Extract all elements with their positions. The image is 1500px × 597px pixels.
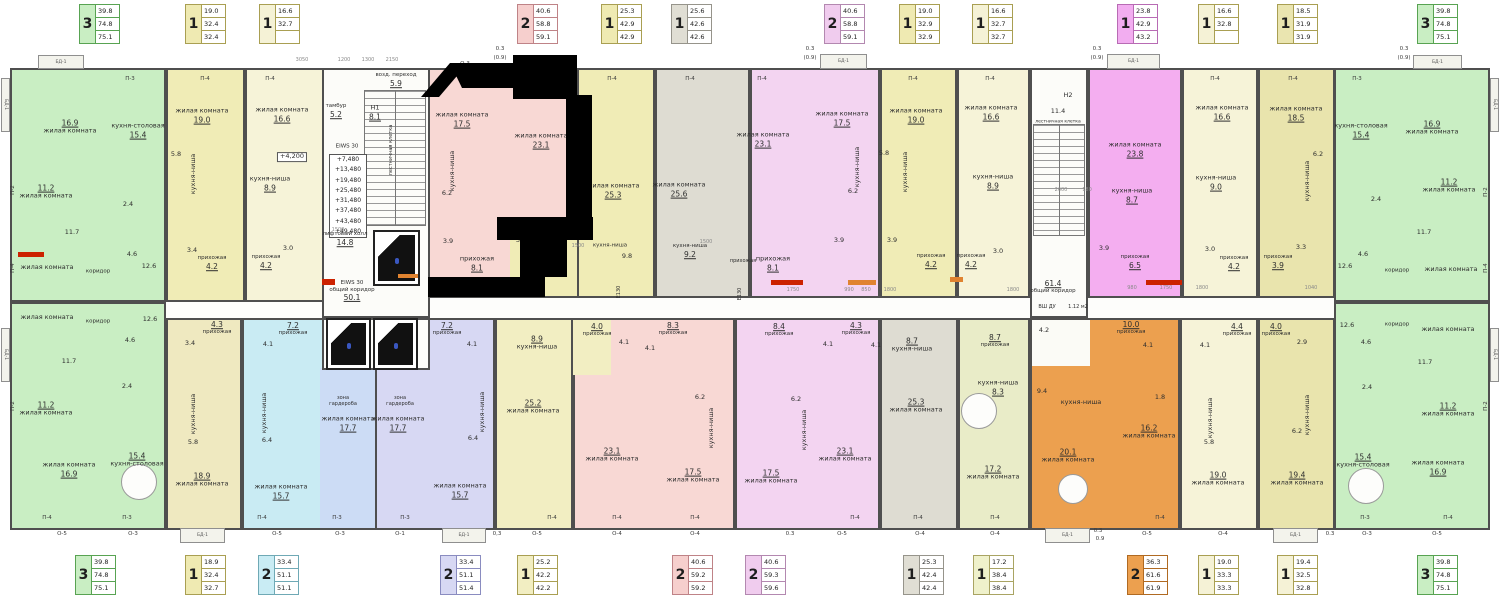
room-name: жилая комната	[818, 456, 871, 464]
wall-label: 0.9	[1096, 536, 1105, 542]
badge-area-value: 58.8	[534, 18, 557, 31]
room-name: жилая комната	[42, 462, 95, 470]
badge-area-value: 36.3	[1144, 556, 1167, 569]
room-name: 6.4	[262, 437, 272, 445]
room-label: 4.1	[1143, 342, 1153, 350]
room-area: 19.0	[175, 115, 228, 124]
room-name: кухня-ниша	[1196, 175, 1237, 183]
room-name: 4.1	[645, 345, 655, 353]
room-label: 5.8	[879, 150, 889, 158]
table-icon	[121, 464, 157, 500]
wall-label: О-3	[335, 531, 345, 537]
room-label: 3.9	[516, 237, 526, 245]
room-label: ВШ ДУ	[1038, 304, 1055, 310]
room-name: 5.8	[171, 151, 181, 159]
floor-level-value: +31,480	[330, 198, 366, 204]
wall-label: 0.3	[1326, 531, 1335, 537]
apartment-badge[interactable]: 116.632.8	[1198, 4, 1239, 44]
room-name: прихожая	[1121, 254, 1150, 261]
room-label: прихожая8.1	[460, 256, 494, 273]
wall-label: П-4	[850, 515, 860, 521]
apartment-badge[interactable]: 125.342.942.9	[601, 4, 642, 44]
room-area: 8.1	[369, 112, 381, 121]
badge-area-value: 25.3	[920, 556, 943, 569]
room-label: 4.6	[127, 251, 137, 259]
wall-label: (0.9)	[803, 55, 816, 61]
badge-room-count: 3	[1418, 556, 1433, 594]
room-label: 19.4жилая комната	[1270, 471, 1323, 488]
room-label: 8.7кухня-ниша	[892, 337, 933, 354]
floor-levels-box: +7,480+13,480+19,480+25,480+31,480+37,48…	[329, 154, 367, 238]
apartment-badge[interactable]: 125.642.642.6	[671, 4, 712, 44]
room-label: 4.3прихожая	[842, 321, 871, 337]
badge-areas: 33.451.151.1	[274, 556, 298, 594]
room-label: 2.4	[123, 201, 133, 209]
room-name: 3.0	[993, 248, 1003, 256]
badge-area-value: 33.3	[1215, 582, 1238, 594]
badge-area-value: 16.6	[1215, 5, 1238, 18]
stair-divider	[1059, 125, 1060, 235]
room-area: 15.4	[111, 130, 164, 139]
badge-area-value: 74.8	[96, 18, 119, 31]
room-label: 17.5жилая комната	[744, 469, 797, 486]
wall-label: О-3	[460, 61, 470, 67]
room-label: жилая комната16.6	[255, 107, 308, 124]
room-label: EIWS 30 общий коридор50.1	[329, 280, 374, 302]
room-name: жилая комната	[20, 314, 73, 322]
room-name: 4.1	[871, 342, 881, 350]
room-area: 19.0	[889, 115, 942, 124]
room-name: жилая комната	[19, 410, 72, 418]
room-area: 25.6	[652, 189, 705, 198]
wall-label: О-5	[1432, 531, 1442, 537]
apartment-badge[interactable]: 236.361.661.9	[1127, 555, 1168, 595]
room-area: 15.7	[254, 491, 307, 500]
room-label: 3.9	[1099, 245, 1109, 253]
badge-room-count: 1	[518, 556, 533, 594]
wall-label: (0.9)	[1090, 55, 1103, 61]
room-label: кухня-ниша	[902, 152, 910, 193]
wall-label: П-4	[1155, 515, 1165, 521]
room-name: 4.6	[1358, 251, 1368, 259]
room-label: жилая комната15.7	[433, 483, 486, 500]
floor-level-value: +7,480	[330, 157, 366, 163]
apartment-badge[interactable]: 339.874.875.1	[1417, 4, 1458, 44]
room-label: 2.9	[1297, 339, 1307, 347]
apartment-badge[interactable]: 125.242.242.2	[517, 555, 558, 595]
balcony: БД-1	[1490, 328, 1499, 382]
room-name: 3.9	[834, 237, 844, 245]
room-name: Н1	[369, 105, 381, 113]
room-label: кухня-ниша	[593, 243, 627, 250]
badge-area-value: 25.2	[534, 556, 557, 569]
badge-areas: 16.632.8	[1214, 5, 1238, 43]
room-label: 25.2жилая комната	[506, 399, 559, 416]
room-label: жилая комната23.1	[736, 132, 789, 149]
room-area: 8.4	[765, 322, 794, 331]
room-name: жилая комната	[889, 407, 942, 415]
wall-label: П-4	[913, 515, 923, 521]
equipment-mark	[771, 280, 803, 285]
room-label: жилая комната17.5	[815, 111, 868, 128]
room-name: жилая комната	[506, 408, 559, 416]
room-label: кухня-ниша	[1304, 161, 1312, 202]
wall-label: П-3	[1352, 76, 1362, 82]
room-name: 3.0	[283, 245, 293, 253]
room-name: жилая комната	[371, 416, 424, 424]
room-area: 5.9	[375, 79, 416, 88]
wall-label: О-5	[837, 531, 847, 537]
badge-area-value: 42.9	[1134, 18, 1157, 31]
apartment-badge[interactable]: 117.238.438.4	[973, 555, 1014, 595]
room-name: прихожая	[433, 330, 462, 337]
badge-area-value: 23.8	[1134, 5, 1157, 18]
wall-label: П-3	[400, 515, 410, 521]
room-name: 1.12 м2	[1068, 304, 1088, 310]
room-name: жилая комната	[1191, 480, 1244, 488]
room-area: 16.9	[42, 469, 95, 478]
wall-label: 0.3	[806, 46, 815, 52]
badge-area-value: 58.8	[841, 18, 864, 31]
room-label: 6.2	[695, 394, 705, 402]
apartment-badge[interactable]: 339.874.875.1	[75, 555, 116, 595]
apartment-badge[interactable]: 240.659.359.6	[745, 555, 786, 595]
room-label: 23.1жилая комната	[818, 447, 871, 464]
badge-area-value: 32.4	[202, 569, 225, 582]
apartment-badge[interactable]: 240.658.859.1	[517, 4, 558, 44]
room-label: жилая комната19.0	[175, 108, 228, 125]
apartment-badge[interactable]: 125.342.442.4	[903, 555, 944, 595]
room-label: 4.1	[871, 342, 881, 350]
apartment-badge[interactable]: 119.033.333.3	[1198, 555, 1239, 595]
room-label: кухня-ниша9.0	[1196, 175, 1237, 192]
balcony: БД-1	[442, 528, 486, 543]
apartment-badge[interactable]: 119.432.532.8	[1277, 555, 1318, 595]
room-label: 11.7	[1417, 229, 1431, 237]
equipment-mark	[950, 277, 963, 282]
badge-areas: 25.242.242.2	[533, 556, 557, 594]
room-name: кухня-столовая	[110, 461, 163, 469]
balcony: БД-1	[820, 54, 867, 69]
badge-area-value: 42.2	[534, 569, 557, 582]
wall-label: П-2	[1483, 187, 1489, 197]
badge-areas: 18.531.931.9	[1293, 5, 1317, 43]
room-area: 16.9	[1411, 467, 1464, 476]
badge-area-value: 33.4	[275, 556, 298, 569]
room-label: 8.7прихожая	[981, 333, 1010, 349]
elevator-shaft	[326, 318, 371, 370]
room-name: лестничная клетка	[388, 125, 394, 176]
balcony: БД-1	[1, 328, 10, 382]
wall-label: П-2	[1483, 401, 1489, 411]
room-label: тамбур5.2	[326, 103, 347, 119]
badge-areas: 36.361.661.9	[1143, 556, 1167, 594]
room-name: жилая комната	[666, 477, 719, 485]
badge-area-value: 75.1	[96, 31, 119, 43]
wall-label: П-4	[612, 515, 622, 521]
room-name: 11.7	[62, 358, 76, 366]
badge-area-value: 25.3	[618, 5, 641, 18]
room-label: кухня-ниша8.7	[1112, 188, 1153, 205]
badge-room-count: 1	[904, 556, 919, 594]
apartment-badge[interactable]: 339.874.875.1	[1417, 555, 1458, 595]
apartment-badge[interactable]: 339.874.875.1	[79, 4, 120, 44]
room-area: 17.7	[371, 423, 424, 432]
dimension-label: 1300	[362, 57, 375, 63]
room-label: 3.3	[1296, 244, 1306, 252]
room-name: жилая комната	[1270, 480, 1323, 488]
balcony: БД-1	[38, 55, 84, 69]
badge-room-count: 3	[1418, 5, 1433, 43]
room-name: лестничная клетка	[1035, 119, 1081, 124]
room-label: 3.0	[1205, 246, 1215, 254]
room-area: 9.0	[1196, 182, 1237, 191]
room-name: 6.2	[695, 394, 705, 402]
badge-areas: 16.632.7	[275, 5, 299, 43]
floor-level-value: +25,480	[330, 188, 366, 194]
room-label: 6.2	[1292, 428, 1302, 436]
wall-label: 0,3	[493, 531, 502, 537]
room-label: кухня-ниша	[479, 392, 487, 433]
room-label: жилая комната	[20, 314, 73, 322]
room-area: 4.2	[198, 262, 227, 271]
apartment-1r-19.4-bottom[interactable]	[1258, 318, 1335, 530]
badge-areas: 39.874.875.1	[1433, 556, 1457, 594]
room-label: 16.2жилая комната	[1122, 424, 1175, 441]
room-label: жилая комната15.7	[254, 484, 307, 501]
badge-area-value: 42.2	[534, 582, 557, 594]
badge-area-value: 42.4	[920, 569, 943, 582]
room-area: 61.4	[1030, 279, 1075, 288]
room-label: прихожая8.1	[756, 256, 790, 273]
room-label: 4.1	[263, 341, 273, 349]
badge-area-value	[1215, 31, 1238, 43]
apartment-badge[interactable]: 233.451.151.1	[258, 555, 299, 595]
room-label: 11.2жилая комната	[19, 401, 72, 418]
room-label: 20.1жилая комната	[1041, 448, 1094, 465]
floor-level-value: +43,480	[330, 219, 366, 225]
wall-label: П-4	[42, 515, 52, 521]
dimension-label: 1040	[1305, 285, 1318, 291]
room-label: кухня-ниша	[1207, 398, 1215, 439]
room-name: кухня-ниша	[1207, 398, 1215, 439]
room-area: 5.2	[326, 110, 347, 119]
room-name: 6.2	[848, 188, 858, 196]
wall-label: П-4	[685, 76, 695, 82]
badge-areas: 25.642.642.6	[687, 5, 711, 43]
room-name: прихожая	[538, 254, 567, 261]
room-label: 15.4кухня-столовая	[110, 452, 163, 469]
wall-label: О-3	[1362, 531, 1372, 537]
wall-label: П-4	[990, 515, 1000, 521]
room-label: жилая комната17.7	[371, 416, 424, 433]
badge-area-value: 51.4	[457, 582, 480, 594]
room-name: кухня-ниша	[978, 380, 1019, 388]
room-name: коридор	[1385, 268, 1409, 275]
room-name: жилая комната	[585, 456, 638, 464]
room-label: кухня-ниша8.3	[978, 380, 1019, 397]
room-area: 8.3	[659, 321, 688, 330]
badge-area-value: 39.8	[92, 556, 115, 569]
badge-area-value: 39.8	[1434, 556, 1457, 569]
room-name: жилая комната	[514, 133, 567, 141]
room-label: кухня-столовая15.4	[1334, 123, 1387, 140]
room-name: прихожая	[1220, 255, 1249, 262]
room-label: 4.2	[1039, 327, 1049, 335]
room-name: 2.4	[122, 383, 132, 391]
room-name: прихожая	[1262, 331, 1291, 338]
wall-label: О-4	[612, 531, 622, 537]
elevator-figure-icon	[395, 258, 399, 264]
room-name: прихожая	[279, 330, 308, 337]
room-label: кухня-ниша	[1061, 399, 1102, 407]
badge-room-count: 1	[602, 5, 617, 43]
room-name: кухня-ниша	[892, 346, 933, 354]
room-name: кухня-ниша	[449, 151, 457, 192]
apartment-badge[interactable]: 118.932.432.7	[185, 555, 226, 595]
room-name: прихожая	[917, 253, 946, 260]
badge-area-value: 51.1	[457, 569, 480, 582]
room-area: 4.0	[1262, 322, 1291, 331]
room-name: жилая комната	[964, 105, 1017, 113]
room-label: 11.7	[65, 229, 79, 237]
balcony: БД-1	[1045, 528, 1090, 543]
room-label: 6.4	[468, 435, 478, 443]
apartment-badge[interactable]: 233.451.151.4	[440, 555, 481, 595]
dimension-label: 1200	[338, 57, 351, 63]
wall-label: О-4	[990, 531, 1000, 537]
room-label: жилая комната16.6	[964, 105, 1017, 122]
badge-area-value: 18.5	[1294, 5, 1317, 18]
wall-label: П-4	[1483, 263, 1489, 273]
room-area: 8.9	[250, 183, 291, 192]
badge-area-value: 40.6	[689, 556, 712, 569]
room-name: жилая комната	[175, 108, 228, 116]
badge-areas: 16.632.732.7	[988, 5, 1012, 43]
room-label: жилая комната18.5	[1269, 106, 1322, 123]
room-label: прихожая4.2	[957, 253, 986, 269]
room-name: кухня-ниша	[902, 152, 910, 193]
dimension-label: 980	[1127, 285, 1137, 291]
room-name: кухня-ниша	[190, 154, 198, 195]
room-name: жилая комната	[966, 474, 1019, 482]
room-label: 3.0	[993, 248, 1003, 256]
room-name: возд. переход	[375, 72, 416, 79]
apartment-badge[interactable]: 116.632.732.7	[972, 4, 1013, 44]
apartment-badge[interactable]: 119.032.932.9	[899, 4, 940, 44]
room-name: 3.0	[1205, 246, 1215, 254]
wall-label: 0.3	[1094, 528, 1103, 534]
room-name: 4.1	[823, 341, 833, 349]
room-name: общий коридор	[1030, 288, 1075, 295]
room-name: 4.6	[125, 337, 135, 345]
apartment-badge[interactable]: 240.659.259.2	[672, 555, 713, 595]
badge-area-value	[276, 31, 299, 43]
room-label: 2.4	[1371, 196, 1381, 204]
apartment-badge[interactable]: 123.842.943.2	[1117, 4, 1158, 44]
wall-label: О-5	[1142, 531, 1152, 537]
room-area: 8.7	[981, 333, 1010, 342]
room-area: 4.2	[252, 261, 281, 270]
room-name: жилая комната	[254, 484, 307, 492]
badge-area-value: 74.8	[1434, 569, 1457, 582]
room-label: 6.2	[442, 190, 452, 198]
apartment-badge[interactable]: 118.531.931.9	[1277, 4, 1318, 44]
room-name: 4.1	[1200, 342, 1210, 350]
badge-area-value: 19.0	[1215, 556, 1238, 569]
equipment-mark	[848, 280, 876, 285]
room-name: жилая комната	[815, 111, 868, 119]
room-name: жилая комната	[889, 108, 942, 116]
room-label: 12.6	[143, 316, 157, 324]
room-label: 4.6	[1358, 251, 1368, 259]
room-name: жилая комната	[43, 128, 96, 136]
room-name: жилая комната	[1421, 411, 1474, 419]
room-label: EIWS 30	[336, 144, 359, 151]
room-name: E130	[737, 288, 743, 301]
apartment-badge[interactable]: 116.632.7	[259, 4, 300, 44]
staircase	[1033, 124, 1085, 236]
floor-level-value: +13,480	[330, 167, 366, 173]
wall-label: П-4	[757, 76, 767, 82]
badge-areas: 39.874.875.1	[91, 556, 115, 594]
room-area: 23.1	[736, 139, 789, 148]
room-name: жилая комната	[586, 183, 639, 191]
room-label: коридор	[1385, 322, 1409, 329]
room-name: лифтовый холл	[323, 231, 368, 238]
apartment-badge[interactable]: 240.658.859.1	[824, 4, 865, 44]
badge-area-value: 59.6	[762, 582, 785, 594]
room-label: E130	[737, 288, 743, 301]
room-area: 17.5	[435, 119, 488, 128]
badge-area-value: 61.9	[1144, 582, 1167, 594]
apartment-1r-19.0-bottom[interactable]	[1180, 318, 1258, 530]
room-name: прихожая	[583, 331, 612, 338]
badge-room-count: 2	[259, 556, 274, 594]
badge-areas: 25.342.942.9	[617, 5, 641, 43]
room-label: 11.7	[1418, 359, 1432, 367]
badge-area-value: 32.9	[916, 31, 939, 43]
badge-room-count: 2	[673, 556, 688, 594]
balcony: БД-1	[180, 528, 225, 543]
room-name: жилая комната	[1405, 129, 1458, 137]
room-label: кухня-ниша	[708, 408, 716, 449]
wall-label: О-5	[57, 531, 67, 537]
wall-label: (0.9)	[1397, 55, 1410, 61]
room-label: жилая комната23.8	[1108, 142, 1161, 159]
badge-area-value: 42.9	[618, 18, 641, 31]
room-name: кухня-ниша	[190, 394, 198, 435]
room-label: 3.9	[887, 237, 897, 245]
apartment-badge[interactable]: 119.032.432.4	[185, 4, 226, 44]
badge-area-value: 51.1	[275, 582, 298, 594]
room-label: 4.1	[1200, 342, 1210, 350]
wall-label: 0.3	[786, 531, 795, 537]
room-area: 4.2	[957, 260, 986, 269]
dimension-label: 1500	[332, 227, 345, 233]
floor-plan-page: +7,480+13,480+19,480+25,480+31,480+37,48…	[0, 0, 1500, 597]
room-name: коридор	[1385, 322, 1409, 329]
room-name: 1.8	[1155, 394, 1165, 402]
badge-area-value: 19.4	[1294, 556, 1317, 569]
room-name: жилая комната	[19, 193, 72, 201]
apartment-1r-18.9-bottom[interactable]	[166, 318, 242, 530]
badge-areas: 39.874.875.1	[95, 5, 119, 43]
room-area: 6.5	[1121, 261, 1150, 270]
room-area: 14.8	[323, 238, 368, 247]
room-name: жилая комната	[175, 481, 228, 489]
room-label: 16.9жилая комната	[1405, 120, 1458, 137]
